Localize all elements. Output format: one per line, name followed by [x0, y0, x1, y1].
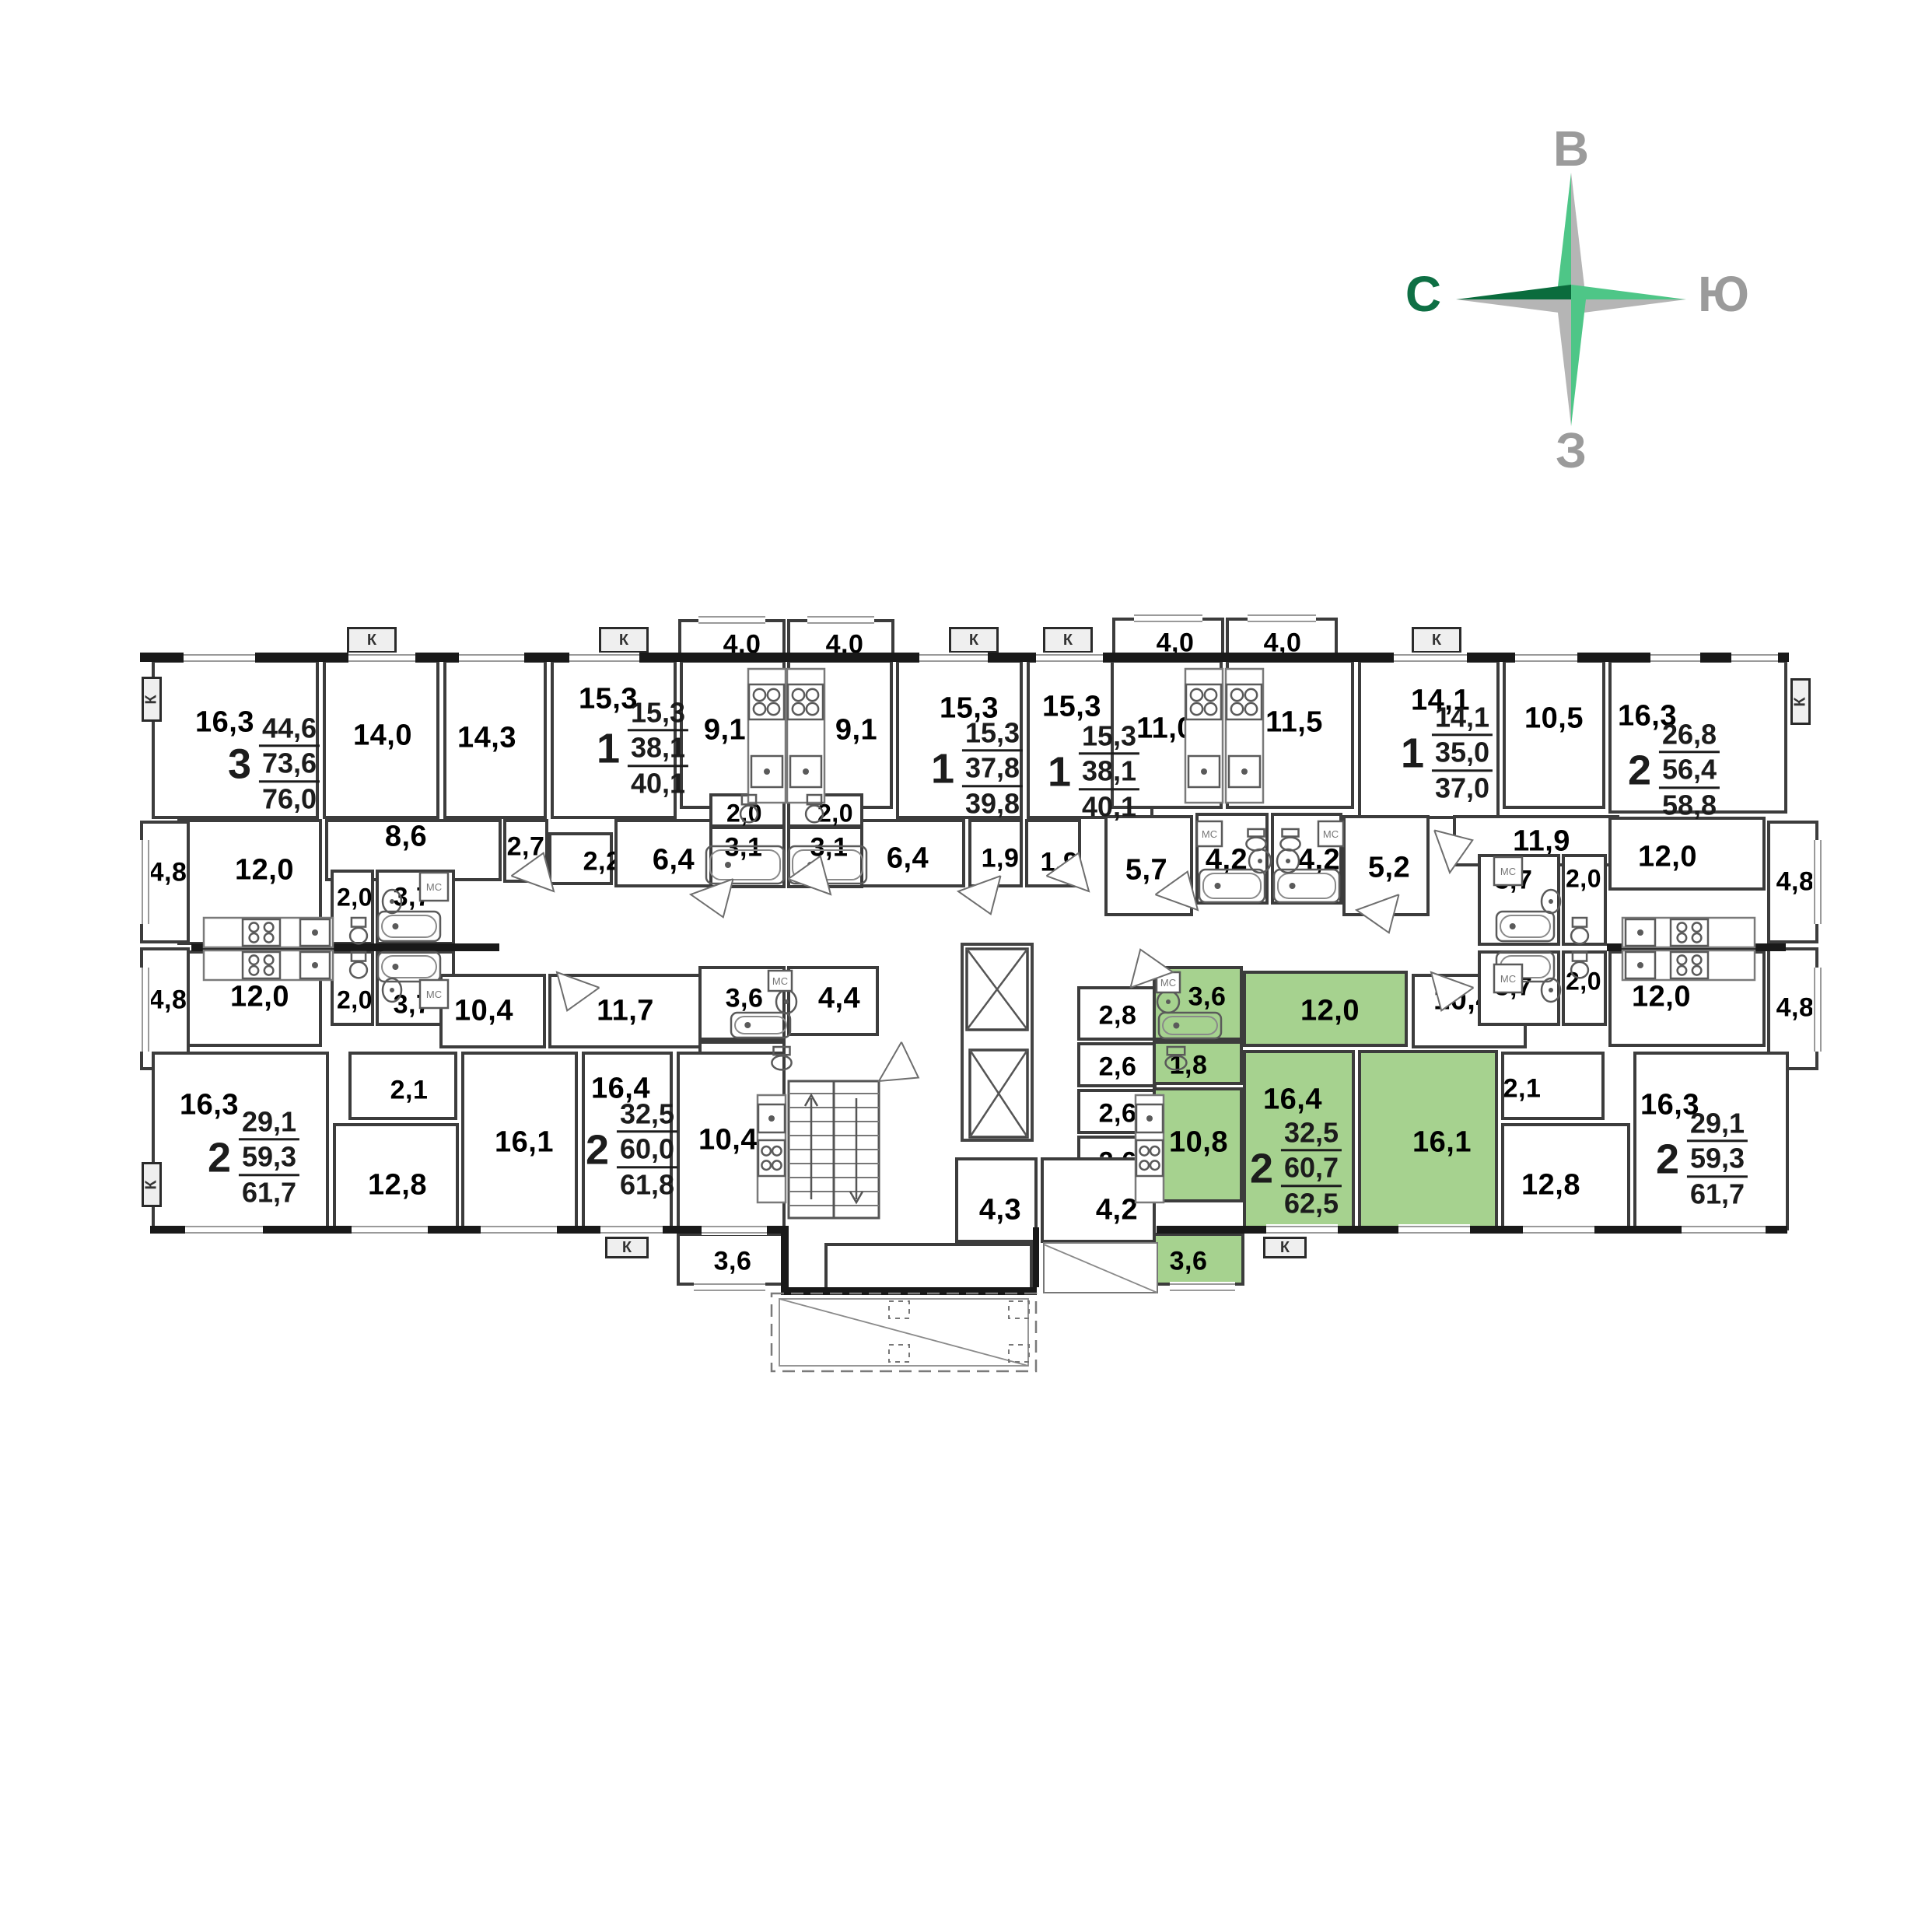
apartment-rooms-count: 2 [1656, 1135, 1679, 1183]
vestibule [824, 1243, 1033, 1291]
room-area-label: 3,7 [1495, 866, 1533, 896]
room-area-label: 12,0 [1632, 981, 1691, 1014]
apartment-area-value: 39,8 [962, 787, 1023, 820]
room-area-label: 11,7 [597, 995, 654, 1028]
room: 4,0 [1226, 618, 1338, 661]
apartment-area-value: 40,1 [628, 767, 688, 800]
room: 4,4 [787, 966, 879, 1036]
room: 2,0 [709, 793, 786, 828]
room-area-label: 4,8 [149, 985, 187, 1016]
balcony-k-marker: К [949, 627, 999, 653]
balcony-k-marker: К [599, 627, 649, 653]
room-area-label: 3,1 [725, 833, 763, 863]
room-area-label: 1,8 [1170, 1051, 1208, 1081]
room-area-label: 4,8 [149, 858, 187, 888]
apartment-area-value: 59,3 [239, 1141, 299, 1176]
room: 11,5 [1226, 660, 1354, 809]
room: 3,6 [1153, 1233, 1244, 1286]
room-area-label: 4,0 [1264, 628, 1302, 659]
room: 14,0 [323, 660, 439, 819]
room-area-label: 3,6 [1170, 1247, 1208, 1277]
balcony-k-marker: К [347, 627, 397, 653]
balcony-k-marker: К [142, 1162, 162, 1207]
room-area-label: 2,1 [1503, 1074, 1542, 1104]
apartment-area-value: 32,5 [1281, 1116, 1342, 1151]
room-area-label: 5,7 [1125, 854, 1167, 887]
room-area-label: 12,8 [1521, 1169, 1580, 1202]
room: 2,2 [548, 832, 613, 885]
room-area-label: 16,1 [495, 1126, 554, 1160]
room: 9,1 [680, 660, 786, 809]
room-area-label: 3,7 [1495, 972, 1533, 1003]
room-area-label: 10,8 [1169, 1126, 1228, 1160]
room-area-label: 2,7 [507, 832, 545, 863]
k-marker-label: К [143, 1180, 161, 1189]
apartment-summary: 226,856,458,8 [1628, 718, 1720, 821]
apartment-summary: 344,673,676,0 [228, 712, 320, 815]
room-area-label: 3,7 [394, 883, 432, 913]
room-area-label: 12,0 [230, 981, 289, 1014]
room: 2,0 [331, 870, 374, 945]
room-area-label: 14,0 [353, 719, 412, 753]
room: 2,7 [503, 819, 548, 883]
apartment-area-value: 73,6 [259, 747, 320, 782]
room: 4,2 [1195, 813, 1269, 905]
room: 3,6 [1153, 966, 1243, 1041]
room: 12,0 [1608, 817, 1766, 891]
room: 10,5 [1503, 660, 1605, 809]
room-area-label: 4,4 [818, 982, 860, 1016]
apartment-summary: 232,560,061,8 [586, 1097, 677, 1201]
apartment-summary: 232,560,762,5 [1250, 1116, 1342, 1220]
room-area-label: 1,9 [1041, 848, 1079, 878]
plan-rooms-layer: 16,314,014,315,39,19,115,315,311,011,514… [0, 0, 1932, 1932]
room: 4,0 [787, 619, 894, 661]
apartment-area-value: 14,1 [1432, 701, 1493, 736]
apartment-area-value: 37,0 [1432, 772, 1493, 804]
room: 12,8 [333, 1123, 459, 1230]
room-area-label: 12,0 [1300, 995, 1360, 1028]
room: 3,1 [709, 826, 786, 888]
apartment-rooms-count: 1 [597, 724, 620, 772]
balcony-k-marker: К [1043, 627, 1093, 653]
k-marker-label: К [143, 695, 161, 704]
room-area-label: 4,2 [1096, 1194, 1138, 1227]
k-marker-label: К [622, 1239, 632, 1257]
room: 2,0 [1562, 950, 1607, 1026]
room: 4,3 [955, 1157, 1038, 1243]
room-area-label: 12,0 [235, 854, 294, 887]
room: 5,7 [1104, 815, 1193, 916]
k-marker-label: К [1432, 632, 1441, 649]
apartment-area-value: 35,0 [1432, 737, 1493, 772]
room-area-label: 4,2 [1298, 844, 1340, 877]
apartment-area-value: 38,1 [1079, 755, 1139, 790]
room-area-label: 10,4 [454, 995, 513, 1028]
apartment-summary: 229,159,361,7 [208, 1105, 299, 1209]
room-area-label: 2,0 [726, 800, 762, 828]
room: 10,4 [439, 974, 546, 1048]
k-marker-label: К [1063, 632, 1073, 649]
room-area-label: 14,3 [457, 722, 516, 755]
apartment-area-value: 15,3 [628, 696, 688, 731]
room-area-label: 9,1 [835, 714, 877, 747]
apartment-area-value: 15,3 [1079, 719, 1139, 754]
k-marker-label: К [1792, 697, 1810, 706]
room-area-label: 15,3 [1042, 691, 1101, 724]
room: 4,2 [1041, 1157, 1156, 1243]
room: 1,8 [1153, 1041, 1243, 1085]
room-area-label: 5,2 [1368, 852, 1410, 885]
room-area-label: 3,6 [1188, 982, 1227, 1013]
room-area-label: 12,0 [1638, 841, 1697, 874]
apartment-area-value: 61,7 [239, 1176, 299, 1209]
room: 3,7 [1478, 854, 1560, 946]
room-area-label: 4,3 [979, 1194, 1021, 1227]
room: 16,1 [1358, 1050, 1498, 1230]
floor-plan-canvas: 16,314,014,315,39,19,115,315,311,011,514… [0, 0, 1932, 1932]
apartment-rooms-count: 3 [228, 740, 251, 788]
room-area-label: 4,2 [1206, 844, 1248, 877]
room: 12,8 [1501, 1123, 1630, 1230]
room: 9,1 [787, 660, 893, 809]
apartment-area-value: 76,0 [259, 782, 320, 815]
room: 2,0 [787, 793, 863, 828]
room: 2,0 [1562, 854, 1607, 946]
room: 3,1 [787, 826, 863, 888]
k-marker-label: К [367, 632, 376, 649]
room: 1,9 [1025, 819, 1081, 887]
room: 10,4 [677, 1052, 786, 1230]
apartment-rooms-count: 2 [586, 1125, 609, 1174]
apartment-area-value: 44,6 [259, 712, 320, 747]
room-area-label: 6,4 [887, 842, 929, 876]
balcony-k-marker: К [605, 1237, 649, 1258]
room-area-label: 11,0 [1136, 712, 1194, 746]
apartment-summary: 115,338,140,1 [597, 696, 688, 800]
room-area-label: 3,6 [726, 984, 764, 1014]
room-area-label: 3,6 [714, 1247, 752, 1277]
room-area-label: 16,4 [1263, 1083, 1322, 1117]
room-area-label: 2,6 [1099, 1099, 1137, 1129]
apartment-area-value: 37,8 [962, 752, 1023, 787]
apartment-area-value: 58,8 [1659, 789, 1720, 821]
room-area-label: 9,1 [704, 714, 746, 747]
room: 4,2 [1271, 813, 1342, 905]
room: 2,1 [348, 1052, 457, 1120]
room-area-label: 11,5 [1265, 706, 1323, 740]
room-area-label: 2,0 [1566, 968, 1601, 996]
apartment-summary: 115,337,839,8 [931, 716, 1023, 820]
room: 11,7 [548, 974, 702, 1048]
balcony-k-marker: К [1412, 627, 1461, 653]
k-marker-label: К [1280, 1239, 1290, 1257]
room-area-label: 2,8 [1099, 1001, 1137, 1031]
apartment-area-value: 38,1 [628, 732, 688, 767]
room: 1,9 [968, 819, 1023, 887]
room: 4,0 [1112, 618, 1224, 661]
room-area-label: 4,0 [826, 630, 864, 660]
apartment-rooms-count: 1 [1401, 729, 1424, 777]
room-area-label: 3,1 [810, 833, 849, 863]
balcony-k-marker: К [142, 677, 162, 722]
room-area-label: 2,0 [1566, 865, 1601, 894]
room-area-label: 16,1 [1412, 1126, 1472, 1160]
room: 2,6 [1077, 1042, 1157, 1087]
room-area-label: 1,9 [982, 844, 1020, 874]
apartment-summary: 115,338,140,1 [1048, 719, 1139, 823]
room-area-label: 2,6 [1099, 1052, 1137, 1083]
room-area-label: 6,4 [653, 844, 695, 877]
room: 4,0 [678, 619, 786, 661]
room: 5,2 [1342, 815, 1430, 916]
room: 4,8 [1767, 821, 1818, 943]
room: 12,0 [1608, 950, 1766, 1047]
room: 2,0 [331, 950, 374, 1026]
room-area-label: 4,0 [723, 630, 761, 660]
room: 2,1 [1501, 1052, 1605, 1120]
apartment-area-value: 40,1 [1079, 790, 1139, 823]
room: 3,6 [698, 966, 786, 1041]
room: 12,0 [1243, 971, 1408, 1047]
apartment-area-value: 29,1 [239, 1105, 299, 1140]
k-marker-label: К [619, 632, 628, 649]
room-area-label: 3,7 [394, 990, 432, 1020]
room-area-label: 2,0 [337, 986, 373, 1015]
apartment-area-value: 60,0 [617, 1133, 677, 1168]
room-area-label: 4,8 [1776, 993, 1815, 1024]
apartment-area-value: 59,3 [1687, 1143, 1748, 1178]
apartment-area-value: 60,7 [1281, 1152, 1342, 1187]
apartment-rooms-count: 2 [208, 1133, 231, 1181]
room: 12,0 [177, 819, 322, 945]
apartment-area-value: 32,5 [617, 1097, 677, 1132]
apartment-rooms-count: 2 [1628, 746, 1651, 794]
room-area-label: 10,4 [698, 1124, 758, 1157]
apartment-area-value: 61,7 [1687, 1178, 1748, 1210]
room: 3,7 [376, 870, 455, 945]
room-area-label: 2,0 [817, 800, 853, 828]
room: 16,1 [461, 1052, 578, 1230]
apartment-summary: 114,135,037,0 [1401, 701, 1493, 804]
apartment-rooms-count: 1 [1048, 747, 1071, 796]
apartment-area-value: 29,1 [1687, 1107, 1748, 1142]
room: 4,8 [140, 821, 190, 943]
room: 3,6 [677, 1233, 786, 1286]
room: 12,0 [177, 950, 322, 1047]
room-area-label: 8,6 [385, 821, 427, 854]
balcony-k-marker: К [1263, 1237, 1307, 1258]
room-area-label: 4,0 [1157, 628, 1195, 659]
apartment-area-value: 62,5 [1281, 1187, 1342, 1220]
room-area-label: 12,8 [368, 1169, 427, 1202]
room-area-label: 10,5 [1524, 702, 1584, 736]
room-area-label: 4,8 [1776, 867, 1815, 898]
apartment-rooms-count: 2 [1250, 1144, 1273, 1192]
room-area-label: 2,0 [337, 884, 373, 912]
room-area-label: 2,1 [390, 1076, 429, 1106]
room: 2,8 [1077, 986, 1157, 1041]
room: 2,6 [1077, 1089, 1157, 1134]
apartment-area-value: 56,4 [1659, 754, 1720, 789]
balcony-k-marker: К [1790, 678, 1811, 725]
room: 3,7 [1478, 950, 1560, 1026]
apartment-area-value: 61,8 [617, 1168, 677, 1201]
k-marker-label: К [969, 632, 978, 649]
room: 10,8 [1153, 1087, 1243, 1202]
room: 14,3 [443, 660, 547, 819]
apartment-area-value: 26,8 [1659, 718, 1720, 753]
apartment-summary: 229,159,361,7 [1656, 1107, 1748, 1210]
apartment-rooms-count: 1 [931, 744, 954, 793]
apartment-area-value: 15,3 [962, 716, 1023, 751]
